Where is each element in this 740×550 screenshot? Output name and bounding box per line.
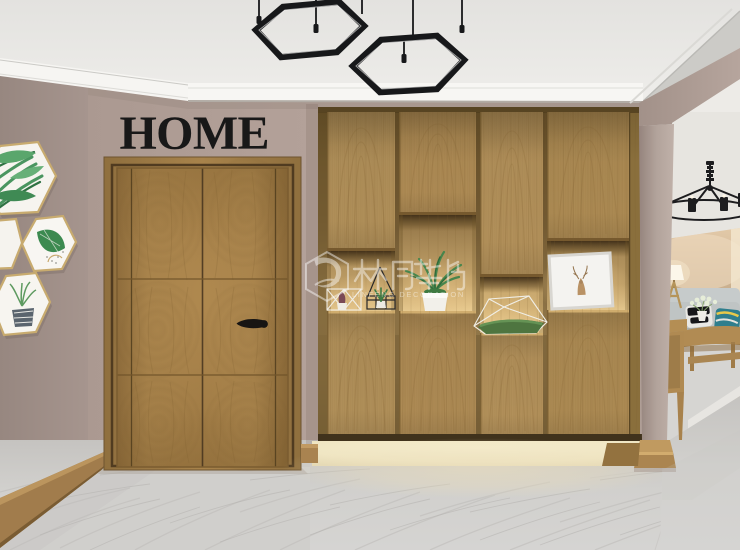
svg-text:HOME: HOME (120, 107, 268, 160)
svg-text:LINFENG DECORATION: LINFENG DECORATION (352, 290, 465, 299)
